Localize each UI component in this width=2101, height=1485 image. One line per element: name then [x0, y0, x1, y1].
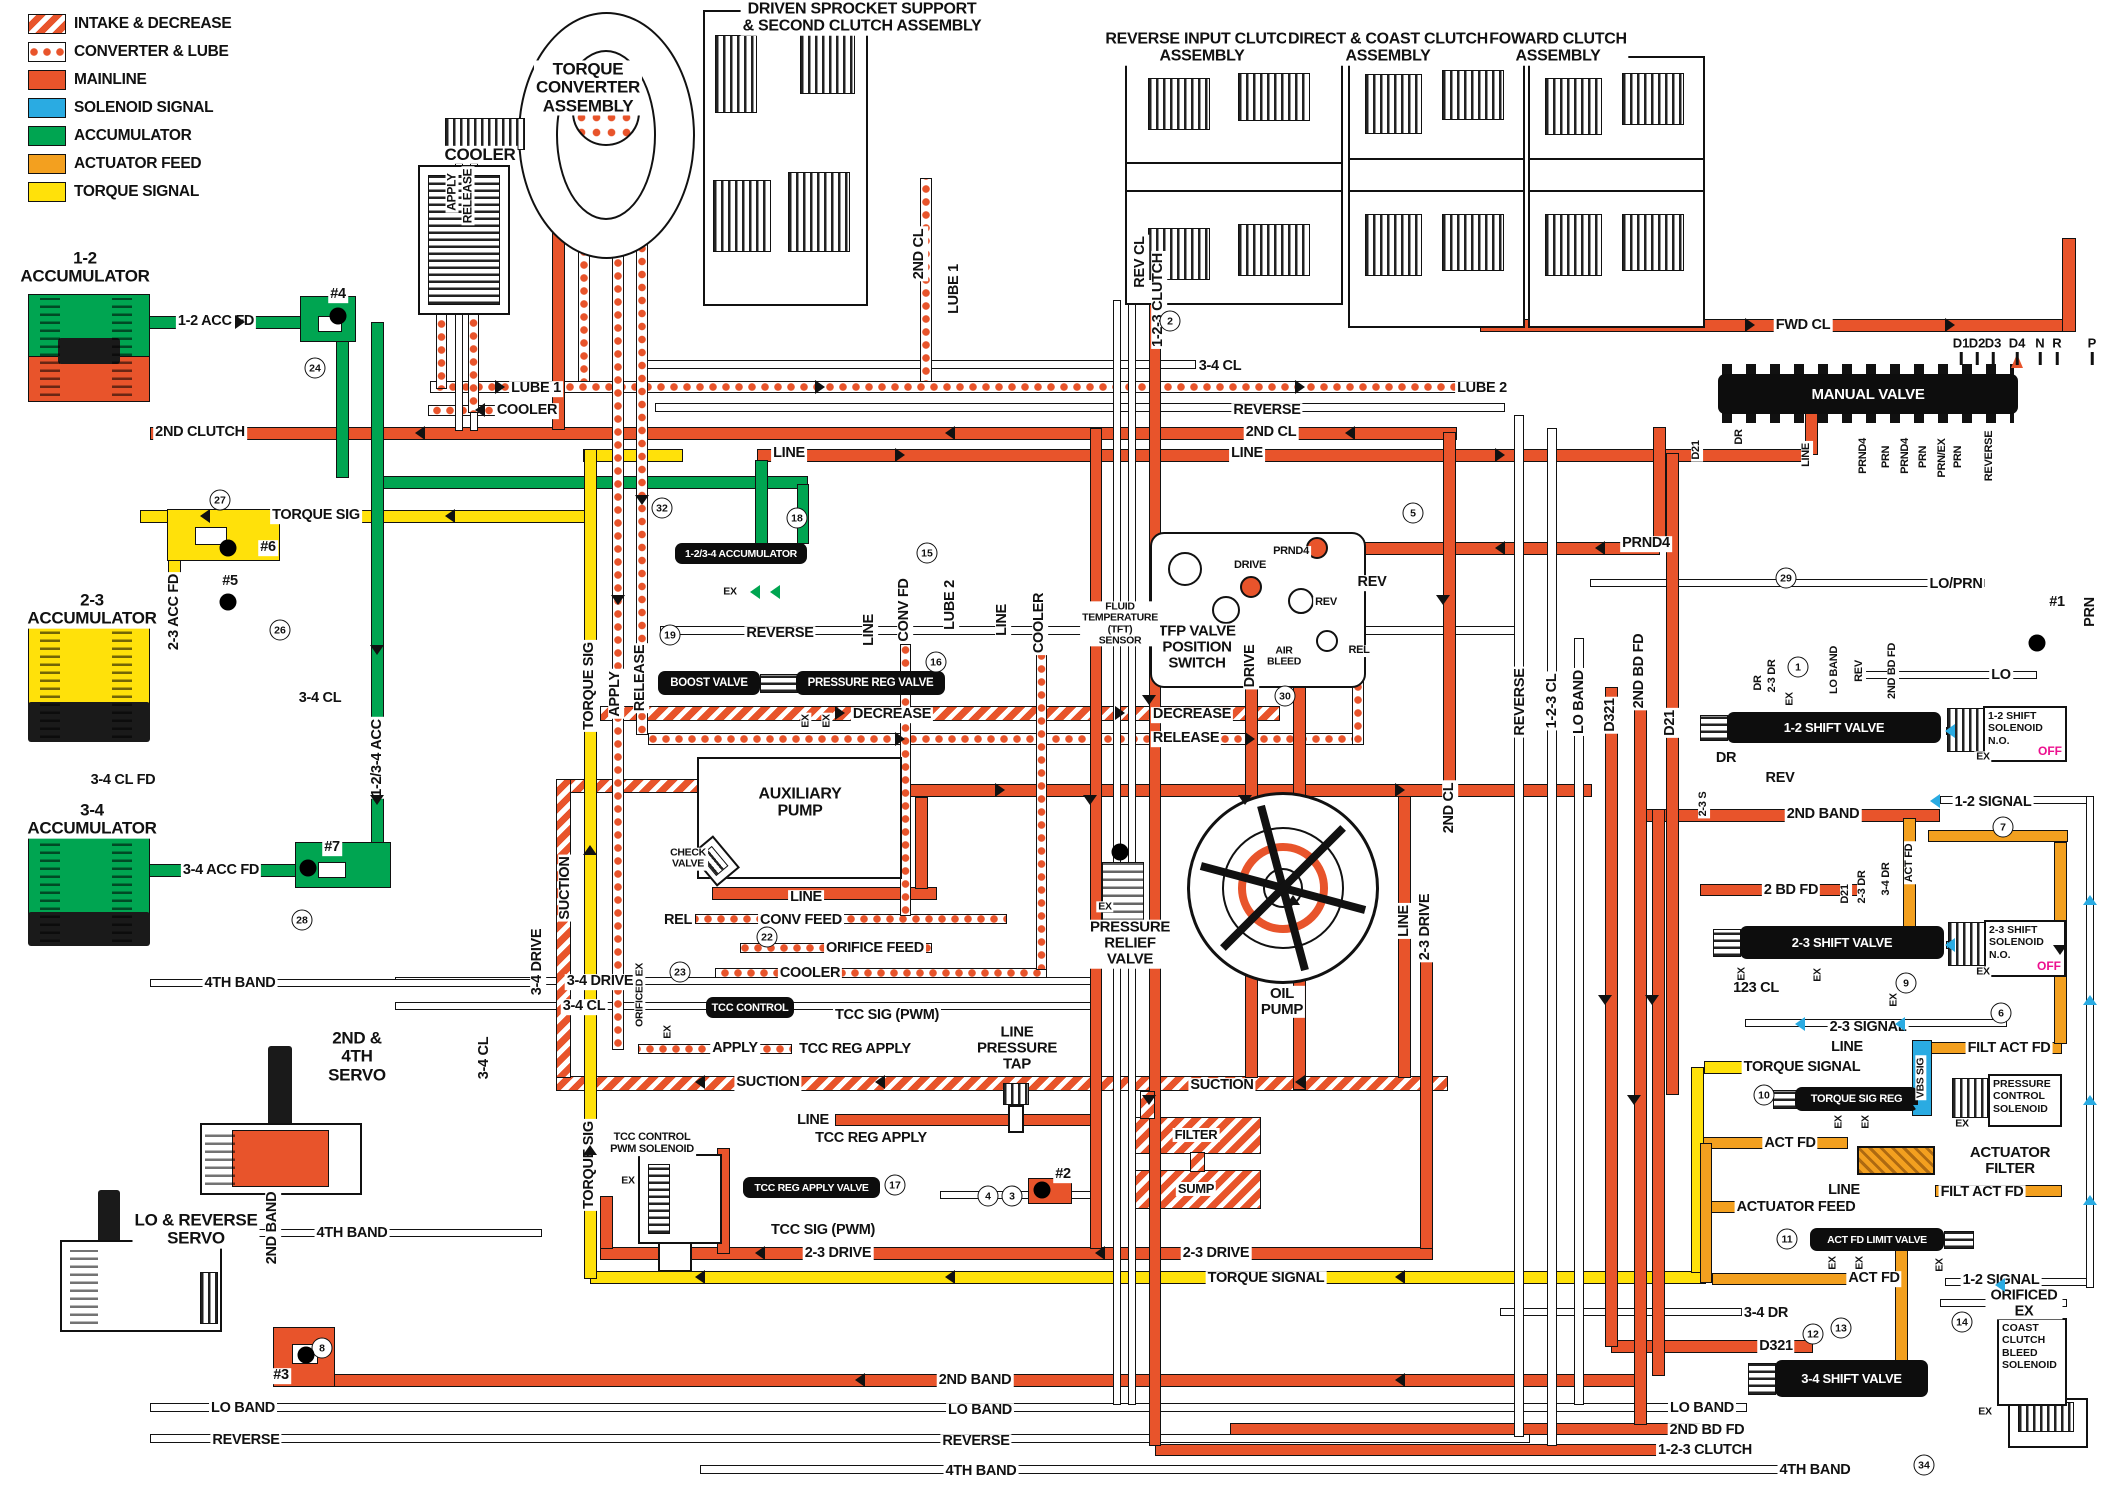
label: EX — [1812, 966, 1823, 983]
pipe-d — [468, 311, 479, 413]
graphic-fins — [2018, 1402, 2074, 1432]
flow-arrow — [1795, 1017, 1805, 1031]
label: TCC REG APPLY — [797, 1042, 913, 1058]
label: 2ND CL — [1244, 425, 1299, 441]
graphic-mcirc — [1240, 576, 1262, 598]
label: LO BAND — [1829, 644, 1841, 696]
graphic-finsv — [1748, 1363, 1776, 1395]
pipe-t — [1128, 300, 1136, 1405]
port-circle: 6 — [1991, 1003, 2012, 1024]
graphic-out — [1348, 158, 1525, 192]
flow-arrow — [1115, 706, 1125, 720]
flow-arrow — [1142, 1095, 1156, 1105]
pipe-m — [600, 1196, 613, 1249]
graphic-finsv — [760, 674, 798, 693]
label: SUCTION — [558, 854, 574, 921]
label: ACTUATOR FILTER — [1968, 1145, 2052, 1177]
legend-swatch-o — [28, 154, 66, 174]
label: EX — [1784, 690, 1795, 707]
gear-tick — [2039, 352, 2042, 365]
label: 1-2/3-4 ACC — [370, 717, 386, 799]
label: DRIVE — [1232, 560, 1268, 572]
flow-arrow — [835, 706, 845, 720]
gear-tick — [2091, 352, 2094, 365]
label: 2ND CLUTCH — [153, 425, 247, 441]
pipe-m — [1605, 687, 1618, 1347]
pipe-t — [1500, 1308, 1742, 1316]
gear-position-r: R — [2052, 336, 2061, 351]
label: AUXILIARY PUMP — [757, 786, 844, 821]
label: TFP VALVE POSITION SWITCH — [1156, 624, 1237, 673]
label: TORQUE SIGNAL — [1206, 1271, 1327, 1287]
port-circle: 16 — [926, 652, 947, 673]
label: LO & REVERSE SERVO — [133, 1212, 260, 1249]
label: 3-4 ACCUMULATOR — [25, 802, 158, 839]
pipe-t — [2086, 796, 2094, 1288]
label: FILT ACT FD — [1966, 1041, 2053, 1057]
label: 2-3 DRIVE — [1418, 892, 1434, 963]
graphic-spring — [40, 838, 60, 942]
legend-label: CONVERTER & LUBE — [74, 43, 229, 61]
label: #2 — [1053, 1167, 1073, 1183]
port-circle: 4 — [978, 1186, 999, 1207]
pressure-reg-valve-valve-bar: PRESSURE REG VALVE — [796, 671, 945, 695]
label: D321 — [1757, 1339, 1794, 1355]
flow-arrow — [1295, 1075, 1305, 1089]
label: 4TH BAND — [1778, 1463, 1853, 1479]
label: PRND4 — [1858, 436, 1870, 476]
label: COOLER — [1032, 591, 1048, 655]
flow-arrow — [1345, 426, 1355, 440]
flow-arrow — [1295, 380, 1305, 394]
label: FILTER — [1173, 1128, 1220, 1142]
graphic-finsv — [1944, 1231, 1974, 1249]
pipe-h — [1190, 1152, 1205, 1172]
graphic-fins — [1442, 70, 1504, 120]
label: LUBE 1 — [947, 262, 963, 316]
label: EX — [800, 712, 811, 729]
pipe-t — [250, 1229, 542, 1237]
flow-arrow — [1627, 1095, 1641, 1105]
graphic-finsv — [1713, 929, 1741, 957]
port-circle: 12 — [1803, 1324, 1824, 1345]
gear-position-d1: D1 — [1953, 336, 1970, 351]
port-circle: 27 — [210, 490, 231, 511]
graphic-wnotch — [318, 862, 346, 878]
label: 2ND BAND — [937, 1373, 1014, 1389]
graphic-springb — [1102, 862, 1144, 922]
pipe-m — [1420, 949, 1433, 1249]
label: REVERSE — [940, 1434, 1011, 1450]
label: #6 — [258, 540, 278, 556]
graphic-fins — [1442, 214, 1504, 271]
label: EX — [821, 712, 832, 729]
graphic-finsv — [1700, 715, 1728, 741]
port-circle: 9 — [1896, 973, 1917, 994]
port-circle: 1 — [1788, 657, 1809, 678]
gear-tick — [2056, 352, 2059, 365]
label: DIRECT & COAST CLUTCH ASSEMBLY — [1286, 31, 1490, 66]
port-circle: 3 — [1002, 1186, 1023, 1207]
pipe-d — [436, 311, 447, 389]
label: PRND4 — [1900, 436, 1912, 476]
flow-arrow — [2083, 995, 2097, 1005]
label: REL — [1346, 645, 1371, 657]
label: SUCTION — [1188, 1078, 1255, 1094]
label: REV CL — [1133, 234, 1149, 289]
label: RELEASE — [462, 167, 475, 226]
label: ACT FD — [1904, 842, 1916, 885]
label: LINE — [1229, 446, 1265, 462]
graphic-m — [232, 1130, 329, 1187]
label: 2-3 DR — [1767, 657, 1779, 694]
label: 3-4 DR — [1742, 1306, 1790, 1322]
legend-label: ACCUMULATOR — [74, 127, 192, 145]
label: FILT ACT FD — [1939, 1185, 2026, 1201]
label: 1-2-3 CLUTCH — [1656, 1443, 1754, 1459]
pipe-m — [835, 1114, 1091, 1126]
label: LO BAND — [209, 1401, 277, 1417]
label: FLUID TEMPERATURE (TFT) SENSOR — [1080, 601, 1160, 646]
label: DR — [1714, 751, 1738, 767]
graphic-circ — [1212, 596, 1240, 624]
pipe-m — [915, 797, 928, 889]
label: SUMP — [1176, 1182, 1216, 1196]
graphic-fins — [1545, 78, 1602, 135]
graphic-fins — [1238, 73, 1310, 121]
flow-arrow — [2083, 1095, 2097, 1105]
label: LINE PRESSURE TAP — [975, 1025, 1059, 1074]
3-4-shift-valve-valve-bar: 3-4 SHIFT VALVE — [1775, 1360, 1928, 1397]
label: VBS SIG — [1915, 1056, 1926, 1101]
transmission-hydraulic-diagram: 1-2/3-4 ACCUMULATORBOOST VALVEPRESSURE R… — [0, 0, 2101, 1485]
legend-swatch-m — [28, 70, 66, 90]
label: TORQUE SIG — [270, 508, 362, 524]
label: LINE — [1801, 441, 1813, 469]
label: CHECK VALVE — [668, 848, 708, 871]
label: ORIFICE FEED — [824, 941, 926, 957]
pipe-g — [755, 460, 768, 545]
label: REL — [662, 913, 694, 929]
graphic-out — [658, 1242, 692, 1272]
pipe-t — [700, 1465, 1852, 1474]
pipe-m — [1155, 1444, 1703, 1456]
label: 2ND BD FD — [1632, 632, 1648, 711]
checkball — [220, 540, 237, 557]
label: PRESSURE RELIEF VALVE — [1088, 920, 1172, 969]
checkball — [2029, 635, 2046, 652]
label: ACT FD — [1762, 1136, 1817, 1152]
flow-arrow — [945, 426, 955, 440]
flow-arrow — [583, 845, 597, 855]
label: PRN — [2083, 595, 2099, 629]
flow-arrow — [415, 426, 425, 440]
legend-swatch-b — [28, 98, 66, 118]
port-circle: 2 — [1160, 311, 1181, 332]
graphic-fins — [1545, 214, 1602, 276]
gear-tick — [2016, 352, 2019, 365]
label: EX — [721, 586, 738, 597]
label: LINE — [1397, 903, 1413, 939]
pipe-o — [1700, 1143, 1712, 1283]
pipe-m — [1634, 699, 1647, 1425]
label: LO BAND — [946, 1403, 1014, 1419]
legend-item: CONVERTER & LUBE — [28, 42, 229, 62]
port-circle: 32 — [652, 498, 673, 519]
flow-arrow — [1598, 995, 1612, 1005]
label: 2 BD FD — [1762, 883, 1820, 899]
flow-arrow — [1395, 1270, 1405, 1284]
label: 2ND BAND — [265, 1190, 281, 1267]
flow-arrow — [1945, 724, 1955, 738]
graphic-circ — [1316, 630, 1338, 652]
label: 3-4 CL FD — [89, 773, 158, 789]
pipe-y — [590, 1271, 1706, 1284]
pipe-t — [1514, 415, 1524, 1437]
flow-arrow — [370, 795, 384, 805]
label: TCC CONTROL PWM SOLENOID — [608, 1132, 696, 1156]
gear-position-d2: D2 — [1969, 336, 1986, 351]
flow-arrow — [635, 495, 649, 505]
label: REV — [1313, 597, 1339, 609]
graphic-circ — [1288, 588, 1314, 614]
label: FWD CL — [1774, 318, 1833, 334]
label: 1-2 ACCUMULATOR — [18, 250, 151, 287]
graphic-spring — [112, 298, 132, 396]
pipe-h — [556, 779, 571, 1078]
legend-item: TORQUE SIGNAL — [28, 182, 199, 202]
flow-arrow — [611, 595, 625, 605]
flow-arrow — [1245, 732, 1255, 746]
tcc-reg-apply-valve-valve-bar: TCC REG APPLY VALVE — [743, 1177, 880, 1198]
label: LO/PRN — [1928, 577, 1985, 593]
label: 2ND CL — [1442, 781, 1458, 836]
gear-position-n: N — [2035, 336, 2044, 351]
label: 3-4 DRIVE — [530, 927, 546, 998]
flow-arrow — [2083, 1195, 2097, 1205]
label: PRND4 — [1271, 546, 1311, 558]
port-circle: 17 — [885, 1175, 906, 1196]
label: COOLER — [778, 966, 842, 982]
label: TCC REG APPLY — [813, 1131, 929, 1147]
flow-arrow — [1895, 1017, 1905, 1031]
legend-item: ACCUMULATOR — [28, 126, 192, 146]
flow-arrow — [2083, 895, 2097, 905]
port-circle: 24 — [305, 358, 326, 379]
legend-label: ACTUATOR FEED — [74, 155, 201, 173]
label: DRIVEN SPROCKET SUPPORT & SECOND CLUTCH … — [741, 1, 984, 36]
label: REVERSE — [1984, 429, 1996, 483]
label: EX — [1934, 1256, 1945, 1273]
label: FOWARD CLUTCH ASSEMBLY — [1487, 31, 1628, 66]
port-circle: 10 — [1754, 1085, 1775, 1106]
legend-label: TORQUE SIGNAL — [74, 183, 199, 201]
label: PRN — [1953, 444, 1965, 470]
label: COOLER — [443, 146, 518, 164]
legend-item: INTAKE & DECREASE — [28, 14, 231, 34]
label: REVERSE — [210, 1433, 281, 1449]
flow-arrow — [200, 509, 210, 523]
label: APPLY — [710, 1041, 760, 1057]
pipe-g — [336, 329, 349, 478]
legend-label: MAINLINE — [74, 71, 147, 89]
label: #4 — [328, 287, 348, 303]
label: 2ND CL — [912, 227, 928, 282]
label: PRN — [1918, 444, 1930, 470]
label: EX — [619, 1175, 636, 1186]
label: EX — [1833, 1113, 1844, 1130]
pipe-t — [150, 1434, 1530, 1443]
label: 3-4 CL — [1197, 359, 1244, 375]
label: EX — [1974, 966, 1991, 977]
flow-arrow — [1945, 318, 1955, 332]
graphic-mesh — [1857, 1146, 1935, 1175]
graphic-spring — [40, 628, 60, 738]
label: REVERSE — [744, 626, 815, 642]
label: #7 — [322, 840, 342, 856]
graphic-out — [1008, 1105, 1024, 1133]
label: PRN/EX — [1937, 436, 1949, 479]
flow-arrow — [235, 315, 245, 329]
graphic-fins — [200, 1272, 218, 1324]
graphic-fins — [1622, 73, 1684, 125]
flow-arrow — [695, 1270, 705, 1284]
label: 1-2-3 CL — [1545, 672, 1561, 731]
flow-arrow — [770, 585, 780, 599]
legend-swatch-d — [28, 42, 66, 62]
port-circle: 22 — [757, 927, 778, 948]
flow-arrow — [583, 1145, 597, 1155]
label: EX — [1854, 1254, 1865, 1271]
flow-arrow — [1495, 448, 1505, 462]
pipe-h — [556, 1076, 1448, 1091]
label: DR — [1734, 427, 1746, 446]
pipe-y — [583, 449, 683, 462]
label: 2-3 DR — [1857, 868, 1869, 905]
label: LO — [1989, 668, 2013, 684]
graphic-fins — [788, 172, 850, 252]
graphic-fins — [1238, 224, 1310, 276]
label: LINE — [1829, 1040, 1865, 1056]
pipe-d — [695, 914, 1007, 924]
port-circle: 23 — [670, 962, 691, 983]
graphic-spring — [112, 838, 132, 942]
label: D21 — [1663, 708, 1679, 738]
label: D321 — [1603, 696, 1619, 733]
label: D21 — [1691, 438, 1703, 461]
flow-arrow — [945, 1270, 955, 1284]
graphic-out — [1528, 158, 1705, 192]
graphic-finsv — [1773, 1090, 1797, 1109]
graphic-circ — [1168, 552, 1202, 586]
label: LUBE 2 — [943, 578, 959, 632]
flow-arrow — [750, 585, 760, 599]
legend-swatch-y — [28, 182, 66, 202]
pipe-m — [2062, 238, 2076, 332]
port-circle: 18 — [787, 508, 808, 529]
label: 3-4 DRIVE — [565, 974, 636, 990]
checkball — [298, 1347, 315, 1364]
label: LUBE 1 — [509, 381, 563, 397]
label: LINE — [1826, 1183, 1862, 1199]
label: LINE — [795, 1113, 831, 1129]
label: DR — [1753, 673, 1765, 692]
label: D21 — [1840, 882, 1852, 905]
label: 4TH BAND — [315, 1226, 390, 1242]
flow-arrow — [755, 1246, 765, 1260]
act-fd-limit-valve-valve-bar: ACT FD LIMIT VALVE — [1810, 1228, 1944, 1251]
flow-arrow — [2053, 945, 2067, 955]
port-circle: 34 — [1914, 1455, 1935, 1476]
pipe-d — [612, 230, 624, 1050]
gear-position-p: P — [2088, 336, 2097, 351]
label: ORIFICED EX — [634, 961, 645, 1029]
graphic-fins — [1148, 78, 1210, 130]
label: LINE — [771, 446, 807, 462]
graphic-fins — [1952, 1078, 1988, 1118]
flow-arrow — [895, 448, 905, 462]
flow-arrow — [1395, 783, 1405, 797]
graphic-fins — [715, 35, 757, 113]
port-circle: 28 — [292, 910, 313, 931]
label: 2-3 ACC FD — [167, 572, 183, 652]
graphic-finsv — [648, 1164, 670, 1234]
label: TCC SIG (PWM) — [833, 1008, 941, 1024]
label: LINE — [862, 612, 878, 648]
port-circle: 30 — [1275, 686, 1296, 707]
checkball — [220, 594, 237, 611]
flow-arrow — [1142, 695, 1156, 705]
label: EX — [1953, 1118, 1970, 1129]
port-circle: 5 — [1403, 503, 1424, 524]
1-2-shift-valve-valve-bar: 1-2 SHIFT VALVE — [1727, 712, 1941, 743]
flow-arrow — [1745, 318, 1755, 332]
gear-position-d3: D3 — [1985, 336, 2002, 351]
label: APPLY — [608, 669, 624, 719]
label: 3-4 DR — [1881, 860, 1893, 897]
graphic-fins — [1003, 1083, 1029, 1105]
flow-arrow — [1238, 795, 1252, 805]
flow-arrow — [1995, 1278, 2005, 1292]
tcc-control-valve-bar: TCC CONTROL — [706, 997, 794, 1018]
label: DECREASE — [1151, 707, 1233, 723]
checkball — [1034, 1182, 1051, 1199]
label: 2ND BD FD — [1887, 641, 1899, 701]
flow-arrow — [1930, 794, 1940, 808]
pipe-d — [430, 381, 1490, 393]
label: 123 CL — [1731, 981, 1781, 997]
label: DECREASE — [851, 707, 933, 723]
label: EX — [1974, 751, 1991, 762]
label: PRND4 — [1620, 536, 1672, 552]
pipe-m — [1230, 1423, 1700, 1435]
graphic-dark — [58, 338, 120, 364]
label: LUBE 2 — [1455, 381, 1509, 397]
label: 4TH BAND — [944, 1464, 1019, 1480]
graphic-fins — [800, 32, 855, 94]
flow-arrow — [1595, 541, 1605, 555]
label: #1 — [2047, 595, 2067, 611]
label: EX — [1096, 901, 1113, 912]
label: REVERSE INPUT CLUTCH ASSEMBLY — [1103, 31, 1300, 66]
flow-arrow — [895, 732, 905, 746]
port-circle: 7 — [1993, 817, 2014, 838]
flow-arrow — [1645, 995, 1659, 1005]
boost-valve-valve-bar: BOOST VALVE — [658, 671, 760, 695]
checkball — [300, 860, 317, 877]
port-circle: 11 — [1777, 1229, 1798, 1250]
label: 1-2 SIGNAL — [1953, 795, 2034, 811]
